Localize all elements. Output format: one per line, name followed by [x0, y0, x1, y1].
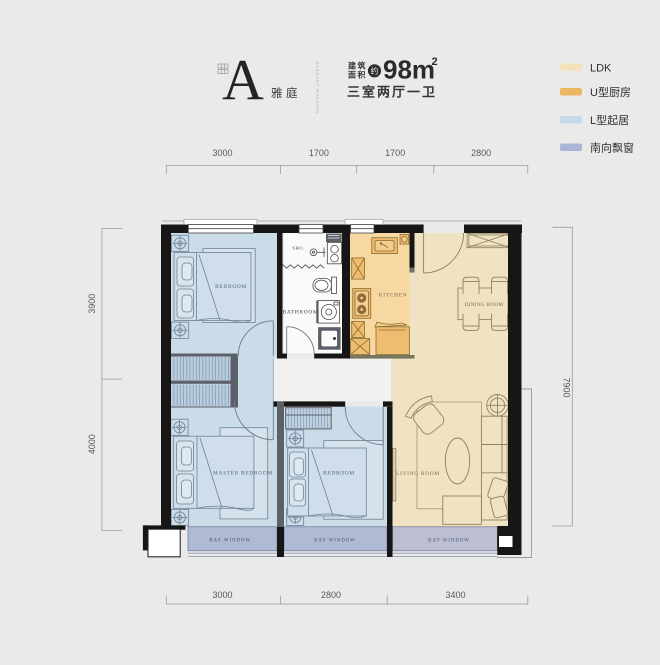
svg-text:雅庭: 雅庭 — [271, 86, 301, 100]
svg-text:A: A — [222, 48, 264, 113]
svg-text:BAY WINDOW: BAY WINDOW — [209, 539, 251, 544]
svg-text:SHO.: SHO. — [292, 246, 304, 251]
svg-text:98m: 98m — [383, 55, 435, 85]
svg-text:U型厨房: U型厨房 — [590, 85, 631, 99]
svg-text:BAY WINDOW: BAY WINDOW — [314, 539, 356, 544]
svg-text:建筑: 建筑 — [347, 61, 367, 71]
svg-text:南向飘窗: 南向飘窗 — [590, 141, 634, 155]
svg-text:DINING ROOM: DINING ROOM — [465, 302, 504, 308]
svg-text:4000: 4000 — [87, 434, 97, 454]
svg-text:L型起居: L型起居 — [590, 113, 629, 127]
svg-text:1700: 1700 — [309, 148, 329, 158]
svg-text:BAY WINDOW: BAY WINDOW — [428, 539, 470, 544]
svg-text:BEDROOM: BEDROOM — [215, 284, 247, 290]
svg-text:1700: 1700 — [385, 148, 405, 158]
svg-text:BEDROOM: BEDROOM — [323, 471, 355, 477]
svg-text:面积: 面积 — [348, 70, 367, 80]
svg-text:3400: 3400 — [445, 590, 465, 600]
svg-text:3000: 3000 — [212, 148, 232, 158]
svg-text:LDK: LDK — [590, 63, 612, 75]
svg-text:2: 2 — [432, 56, 438, 68]
svg-text:三室两厅一卫: 三室两厅一卫 — [347, 85, 437, 100]
svg-text:BATHROOM: BATHROOM — [283, 310, 319, 316]
svg-text:MASTER BEDROOM: MASTER BEDROOM — [213, 471, 273, 477]
svg-text:2800: 2800 — [321, 590, 341, 600]
svg-text:LIVING ROOM: LIVING ROOM — [396, 471, 440, 477]
svg-text:7900: 7900 — [562, 377, 572, 397]
svg-text:约: 约 — [371, 66, 379, 76]
svg-text:2800: 2800 — [471, 148, 491, 158]
svg-text:3000: 3000 — [212, 590, 232, 600]
svg-text:ELEGANT MANSION: ELEGANT MANSION — [315, 62, 320, 114]
svg-text:3900: 3900 — [87, 294, 97, 314]
svg-text:KITCHEN: KITCHEN — [379, 293, 408, 299]
